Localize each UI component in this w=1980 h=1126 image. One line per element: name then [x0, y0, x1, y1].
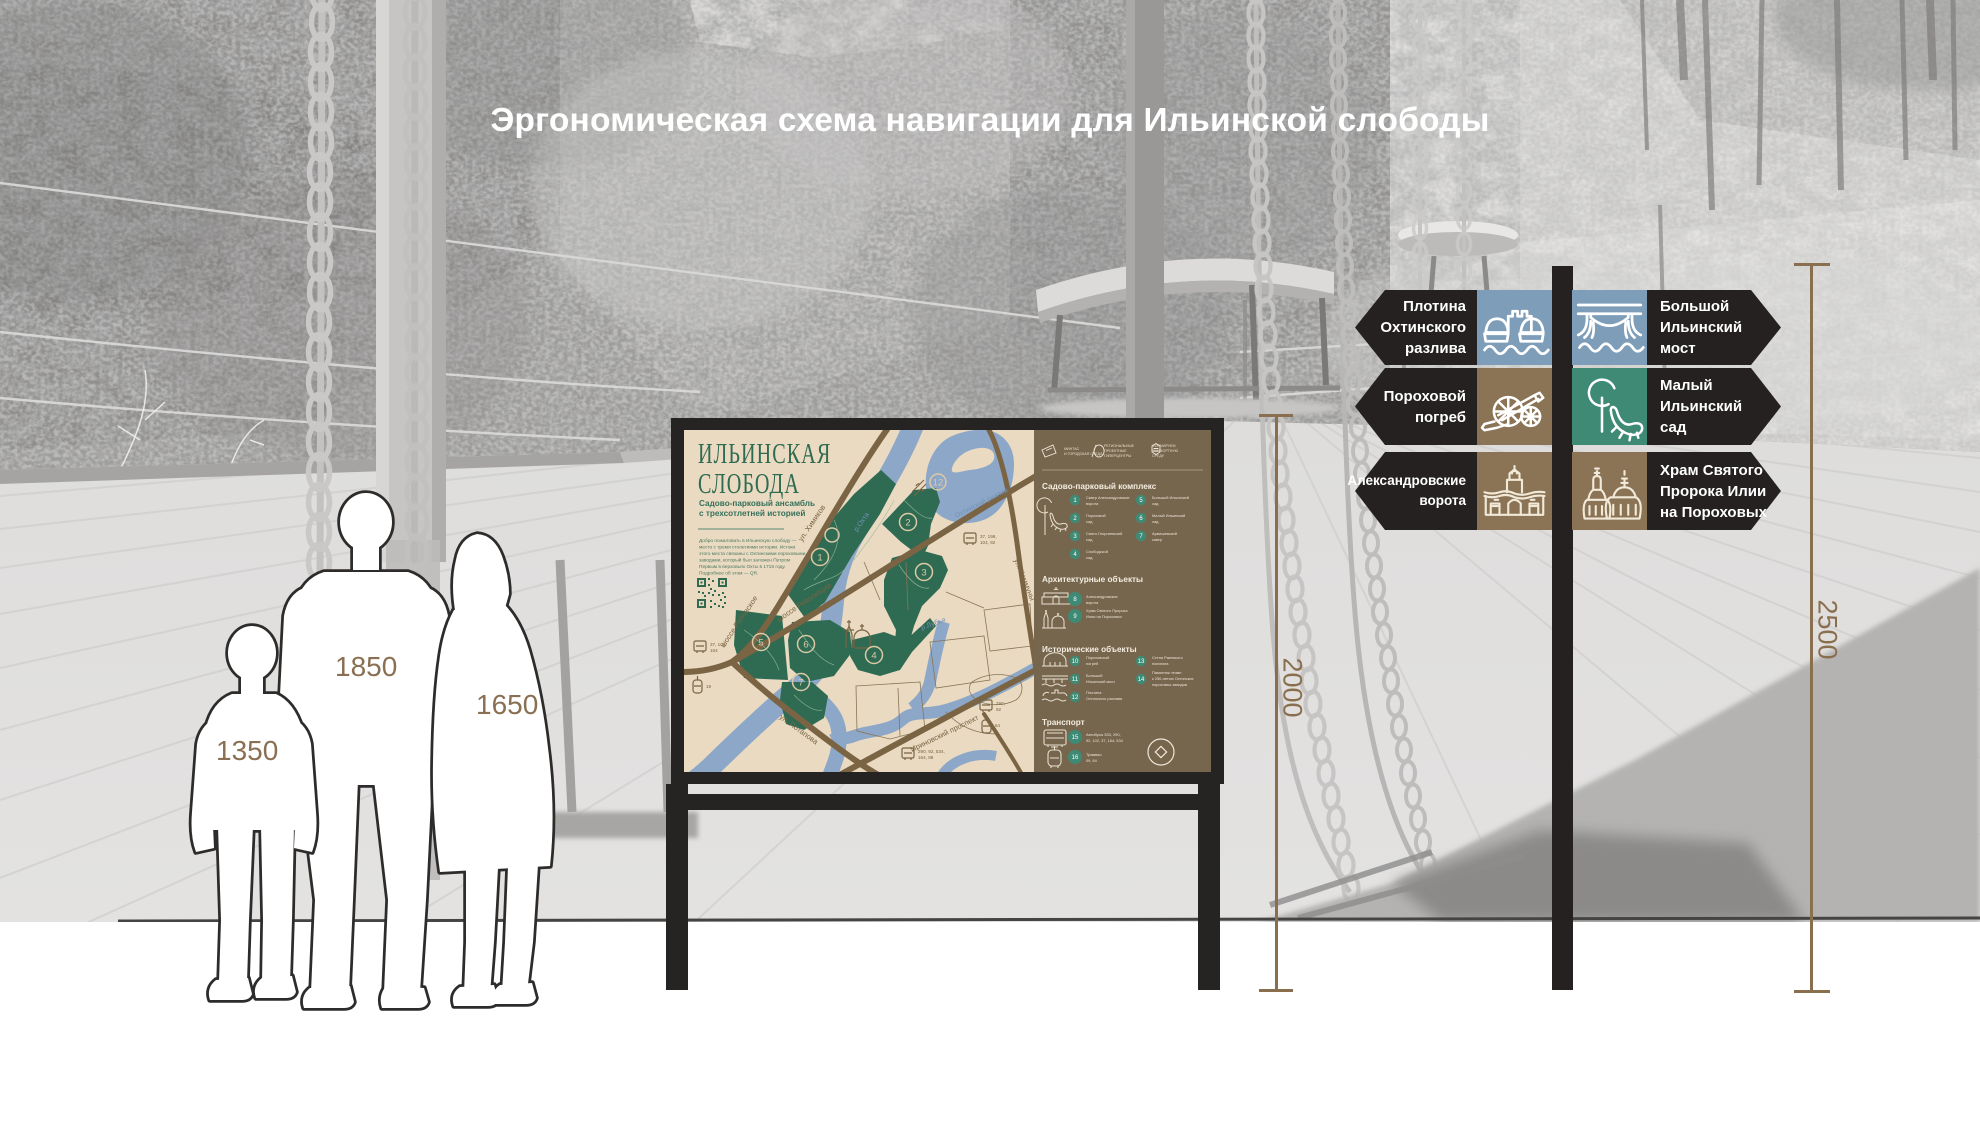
svg-text:Плотина: Плотина [1086, 690, 1102, 695]
svg-text:2: 2 [905, 518, 910, 529]
svg-text:КОМФОРТНУЮ: КОМФОРТНУЮ [1152, 449, 1179, 453]
svg-text:Трамваи: Трамваи [1086, 752, 1102, 757]
svg-text:Александровские: Александровские [1086, 594, 1118, 599]
svg-text:этого места связаны с Охтински: этого места связаны с Охтинскими порохов… [699, 551, 806, 557]
svg-text:5: 5 [758, 638, 763, 649]
svg-text:СРЕДУ: СРЕДУ [1152, 454, 1165, 458]
svg-text:Пороховой: Пороховой [1086, 513, 1106, 518]
svg-text:Свято-Георгиевский: Свято-Георгиевский [1086, 531, 1122, 536]
svg-text:ФОРМИРУЕМ: ФОРМИРУЕМ [1152, 444, 1175, 448]
svg-text:пороховых заводов: пороховых заводов [1152, 682, 1187, 687]
svg-text:6: 6 [803, 640, 808, 651]
svg-text:1650: 1650 [476, 689, 538, 720]
svg-text:Автобусы 533, 290,: Автобусы 533, 290, [1086, 732, 1121, 737]
svg-text:Большой: Большой [1086, 673, 1102, 678]
svg-text:1350: 1350 [216, 735, 278, 766]
svg-text:Памятник чтимн: Памятник чтимн [1152, 670, 1181, 675]
svg-text:09, 64: 09, 64 [1086, 758, 1098, 763]
svg-text:1850: 1850 [335, 651, 397, 682]
svg-text:92, 102, 37, 164, 534: 92, 102, 37, 164, 534 [1086, 738, 1124, 743]
svg-text:4: 4 [871, 651, 876, 662]
svg-text:с трехсотлетней историей: с трехсотлетней историей [699, 509, 805, 518]
svg-text:164: 164 [710, 648, 718, 653]
svg-text:1: 1 [817, 553, 822, 564]
svg-text:сад: сад [1086, 555, 1093, 560]
svg-text:Первым в верховьях Охты в 1715: Первым в верховьях Охты в 1715 году. [699, 564, 786, 570]
svg-text:164, 88: 164, 88 [918, 755, 934, 760]
svg-text:место с тремя столетиями истор: место с тремя столетиями истории. Истоки [699, 545, 796, 551]
svg-text:сад: сад [1152, 501, 1159, 506]
svg-text:к 250-летию Охтинских: к 250-летию Охтинских [1152, 676, 1194, 681]
svg-text:заводами, который был заложен: заводами, который был заложен Петром [699, 557, 790, 564]
svg-text:сад: сад [1086, 537, 1093, 542]
svg-text:МИНТАС: МИНТАС [1064, 447, 1080, 451]
svg-text:92: 92 [996, 707, 1002, 712]
svg-text:ворота: ворота [1086, 600, 1099, 605]
svg-text:14: 14 [1138, 677, 1145, 683]
svg-text:19: 19 [706, 684, 712, 689]
svg-text:Храм Святого Пророка: Храм Святого Пророка [1086, 608, 1128, 613]
svg-text:Стена Ржевского: Стена Ржевского [1152, 655, 1183, 660]
svg-text:Сквер Александровские: Сквер Александровские [1086, 495, 1130, 500]
svg-text:Транспорт: Транспорт [1042, 718, 1085, 727]
svg-text:3: 3 [921, 568, 926, 579]
svg-text:ИЛЬИНСКАЯ: ИЛЬИНСКАЯ [698, 439, 831, 470]
svg-text:37, 198,: 37, 198, [980, 534, 997, 539]
svg-text:Большой Ильинский: Большой Ильинский [1152, 495, 1189, 500]
svg-text:И ГОРОДСКАЯ СРЕДА: И ГОРОДСКАЯ СРЕДА [1064, 452, 1103, 456]
svg-text:Ильинский мост: Ильинский мост [1086, 679, 1115, 684]
svg-text:сквер: сквер [1152, 537, 1162, 542]
svg-text:10: 10 [1072, 659, 1079, 665]
svg-text:7: 7 [798, 678, 803, 689]
svg-text:13: 13 [1138, 659, 1145, 665]
svg-text:Охтинского разлива: Охтинского разлива [1086, 696, 1123, 701]
svg-text:Пороховской: Пороховской [1086, 655, 1109, 660]
svg-text:16: 16 [1072, 755, 1079, 761]
svg-text:Садово-парковый ансамбль: Садово-парковый ансамбль [699, 498, 815, 508]
svg-text:Илии на Пороховых: Илии на Пороховых [1086, 614, 1122, 619]
svg-text:290, 92, 534,: 290, 92, 534, [918, 749, 945, 754]
svg-text:12: 12 [1072, 695, 1079, 701]
svg-text:12: 12 [933, 478, 944, 489]
svg-text:сад: сад [1086, 519, 1093, 524]
svg-text:11: 11 [1072, 677, 1079, 683]
svg-text:15: 15 [1072, 735, 1079, 741]
svg-text:104, 92: 104, 92 [980, 540, 996, 545]
svg-text:37, 102,: 37, 102, [710, 642, 727, 647]
svg-text:погреб: погреб [1086, 661, 1099, 666]
svg-text:64: 64 [995, 723, 1001, 728]
svg-text:ПРОЕКТНЫЕ: ПРОЕКТНЫЕ [1104, 449, 1127, 453]
svg-text:290,: 290, [996, 701, 1005, 706]
svg-text:ГИПЕРЦЕНТРЫ: ГИПЕРЦЕНТРЫ [1104, 454, 1131, 458]
svg-text:СЛОБОДА: СЛОБОДА [698, 469, 800, 500]
svg-text:ворота: ворота [1086, 501, 1099, 506]
svg-text:РЕГИОНАЛЬНЫЕ: РЕГИОНАЛЬНЫЕ [1104, 444, 1135, 448]
svg-text:сад: сад [1152, 519, 1159, 524]
svg-text:Садово-парковый комплекс: Садово-парковый комплекс [1042, 482, 1157, 491]
svg-text:Подробнее об этом — QR.: Подробнее об этом — QR. [699, 571, 758, 577]
svg-text:Армашевский: Армашевский [1152, 531, 1177, 536]
svg-text:Слободской: Слободской [1086, 549, 1108, 554]
svg-text:Архитектурные объекты: Архитектурные объекты [1042, 574, 1143, 584]
svg-text:полигона: полигона [1152, 661, 1169, 666]
svg-text:Малый Ильинский: Малый Ильинский [1152, 513, 1185, 518]
svg-text:Добро пожаловать в Ильинскую с: Добро пожаловать в Ильинскую слободу — [699, 538, 797, 544]
